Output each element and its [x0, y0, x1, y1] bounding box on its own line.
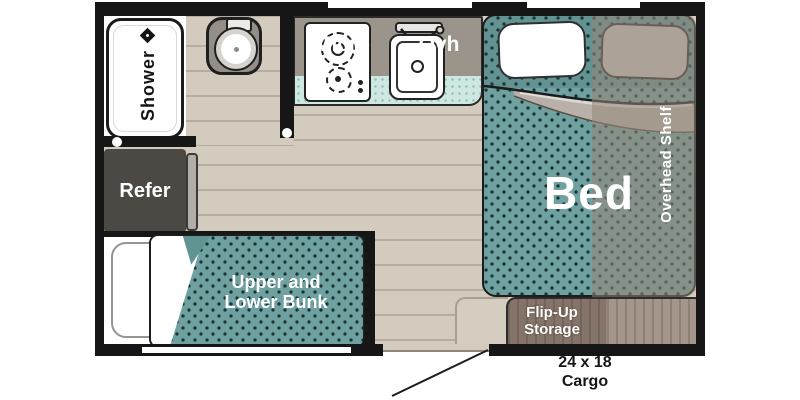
- window-notch: [328, 0, 472, 8]
- ovh-label: Ovh: [409, 33, 469, 57]
- flip-up-line2: Storage: [508, 321, 596, 338]
- bunk-label-line2: Lower Bunk: [191, 292, 361, 312]
- cargo-door-swing-line: [378, 346, 496, 400]
- bunk-label-line1: Upper and: [191, 272, 361, 292]
- stove-knob: [358, 80, 363, 85]
- bed-pillow-left: [497, 20, 587, 79]
- toilet: [206, 17, 262, 75]
- bunk-area: Upper and Lower Bunk: [104, 231, 375, 346]
- overhead-shelf-label: Overhead Shelf: [658, 64, 680, 264]
- refer-label: Refer: [119, 180, 170, 203]
- wall-right: [696, 2, 705, 356]
- kitchen-counter: Micro Ovh: [293, 16, 483, 106]
- window-notch: [142, 347, 351, 353]
- bunk-mattress: Upper and Lower Bunk: [149, 234, 365, 348]
- flip-up-storage: Flip-Up Storage: [506, 297, 699, 347]
- refrigerator: Refer: [104, 149, 186, 233]
- overhead-shelf-overlay: [592, 14, 696, 297]
- door-hinge-dot: [112, 137, 122, 147]
- door-hinge-dot: [282, 128, 292, 138]
- toilet-bowl: [214, 27, 258, 71]
- window-notch: [527, 0, 640, 8]
- shower-label: Shower: [109, 35, 187, 135]
- storage-step: [455, 297, 508, 346]
- micro-label: Micro: [298, 33, 386, 57]
- cargo-label-line1: 24 x 18: [529, 353, 641, 372]
- shower-stall: Shower: [104, 16, 186, 142]
- bunk-label: Upper and Lower Bunk: [191, 272, 361, 312]
- bathroom-wall-vertical: [280, 16, 294, 138]
- bathroom-wall-horizontal: [95, 136, 196, 147]
- stove-burner-small-center: [335, 76, 341, 82]
- flip-up-line1: Flip-Up: [508, 304, 596, 321]
- flip-up-storage-label: Flip-Up Storage: [508, 304, 596, 338]
- shower-tub: Shower: [106, 18, 184, 139]
- sink-drain: [411, 60, 424, 73]
- cargo-label: 24 x 18 Cargo: [529, 353, 641, 391]
- toilet-drain-dot: [234, 47, 239, 52]
- bed-area: Bed Overhead Shelf: [482, 14, 696, 297]
- wall-left: [95, 2, 104, 356]
- refrigerator-door: [186, 153, 198, 231]
- shower-head-icon: [140, 28, 156, 44]
- floorplan-canvas: Shower Mic: [0, 0, 800, 400]
- stove-knob: [358, 88, 363, 93]
- cargo-label-line2: Cargo: [529, 372, 641, 391]
